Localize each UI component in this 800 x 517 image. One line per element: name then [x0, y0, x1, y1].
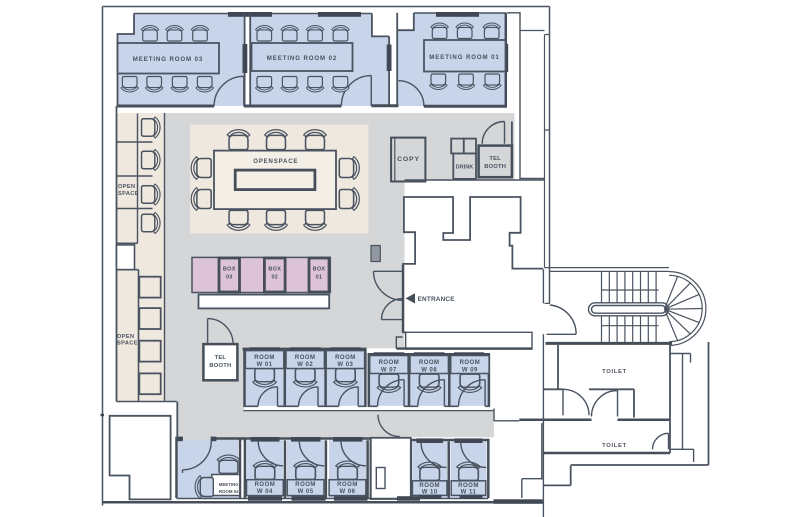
- svg-text:ROOM: ROOM: [337, 482, 358, 488]
- svg-text:OPEN: OPEN: [118, 184, 135, 190]
- svg-text:W 06: W 06: [339, 489, 355, 495]
- svg-text:TEL: TEL: [489, 156, 501, 162]
- svg-text:W 03: W 03: [337, 362, 353, 368]
- svg-text:W 07: W 07: [381, 368, 397, 374]
- svg-text:W 10: W 10: [422, 489, 438, 495]
- svg-text:BOX: BOX: [313, 266, 326, 272]
- svg-text:W 04: W 04: [257, 489, 273, 495]
- svg-text:ROOM: ROOM: [419, 360, 440, 366]
- svg-text:02: 02: [271, 274, 278, 280]
- svg-text:COPY: COPY: [397, 156, 420, 163]
- svg-text:ENTRANCE: ENTRANCE: [418, 296, 456, 303]
- svg-text:ROOM: ROOM: [295, 482, 316, 488]
- svg-text:MEETING ROOM 01: MEETING ROOM 01: [429, 54, 499, 61]
- svg-text:ROOM: ROOM: [458, 483, 479, 489]
- svg-text:W 09: W 09: [462, 368, 478, 374]
- svg-text:01: 01: [316, 274, 323, 280]
- svg-text:BOX: BOX: [268, 266, 281, 272]
- svg-text:OPEN: OPEN: [117, 334, 134, 340]
- svg-text:W 08: W 08: [421, 368, 437, 374]
- svg-text:ROOM: ROOM: [460, 360, 481, 366]
- svg-text:MEETING: MEETING: [219, 482, 240, 487]
- svg-text:MEETING ROOM 02: MEETING ROOM 02: [267, 55, 337, 62]
- svg-text:ROOM: ROOM: [254, 355, 275, 361]
- svg-text:OPENSPACE: OPENSPACE: [253, 158, 298, 165]
- svg-text:ROOM 04: ROOM 04: [219, 489, 239, 494]
- svg-text:W 05: W 05: [298, 489, 314, 495]
- svg-text:TOILET: TOILET: [602, 369, 627, 375]
- svg-text:BOOTH: BOOTH: [484, 164, 506, 170]
- svg-text:03: 03: [226, 274, 233, 280]
- svg-text:ROOM: ROOM: [379, 360, 400, 366]
- svg-text:TOILET: TOILET: [602, 443, 627, 449]
- svg-text:W 01: W 01: [257, 362, 273, 368]
- svg-text:W 11: W 11: [461, 489, 477, 495]
- svg-text:SPACE: SPACE: [117, 341, 138, 347]
- svg-text:MEETING ROOM 03: MEETING ROOM 03: [133, 56, 203, 63]
- svg-text:SPACE: SPACE: [118, 191, 139, 197]
- svg-text:BOX: BOX: [223, 266, 236, 272]
- svg-text:W 02: W 02: [297, 362, 313, 368]
- svg-text:ROOM: ROOM: [335, 355, 356, 361]
- svg-text:TEL: TEL: [215, 355, 227, 361]
- svg-text:DRINK: DRINK: [456, 165, 474, 171]
- svg-text:ROOM: ROOM: [419, 483, 440, 489]
- svg-text:ROOM: ROOM: [255, 482, 276, 488]
- svg-text:ROOM: ROOM: [295, 355, 316, 361]
- svg-text:BOOTH: BOOTH: [209, 363, 231, 369]
